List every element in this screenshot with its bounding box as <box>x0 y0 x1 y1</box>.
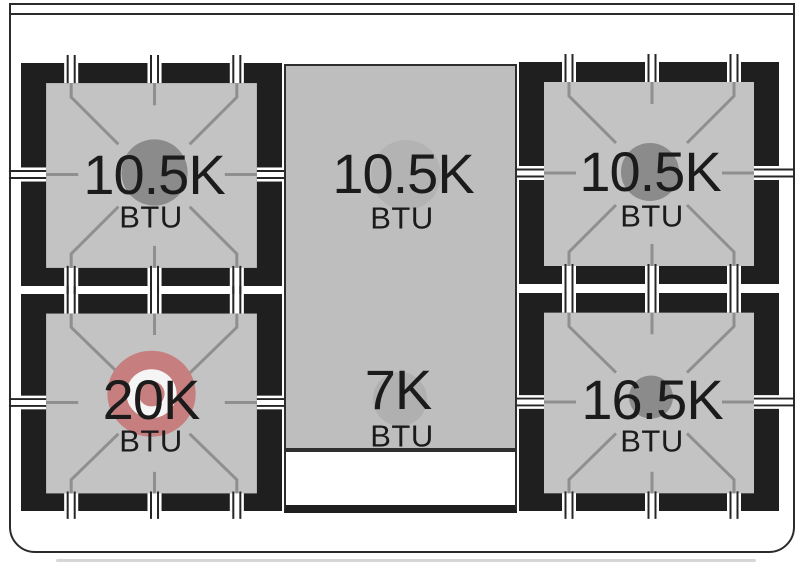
btu-value-top-left: 10.5K <box>83 147 224 203</box>
btu-value-bottom-right: 16.5K <box>581 372 722 428</box>
cooktop-back-edge <box>11 5 793 15</box>
btu-unit-top-center: BTU <box>370 203 434 234</box>
cooktop-diagram: 10.5K BTU 10.5K BTU 10.5K BTU 20K BTU 7K… <box>0 0 810 568</box>
btu-value-bottom-center: 7K <box>365 362 432 418</box>
btu-value-bottom-left: 20K <box>103 372 200 428</box>
btu-unit-bottom-right: BTU <box>620 426 684 457</box>
btu-unit-top-left: BTU <box>119 202 183 233</box>
griddle-drip-tray <box>284 450 517 513</box>
btu-value-top-center: 10.5K <box>332 146 473 202</box>
btu-unit-bottom-center: BTU <box>370 421 434 452</box>
btu-unit-top-right: BTU <box>620 201 684 232</box>
btu-value-top-right: 10.5K <box>579 144 720 200</box>
cooktop-front-shadow <box>56 559 756 562</box>
btu-unit-bottom-left: BTU <box>119 426 183 457</box>
